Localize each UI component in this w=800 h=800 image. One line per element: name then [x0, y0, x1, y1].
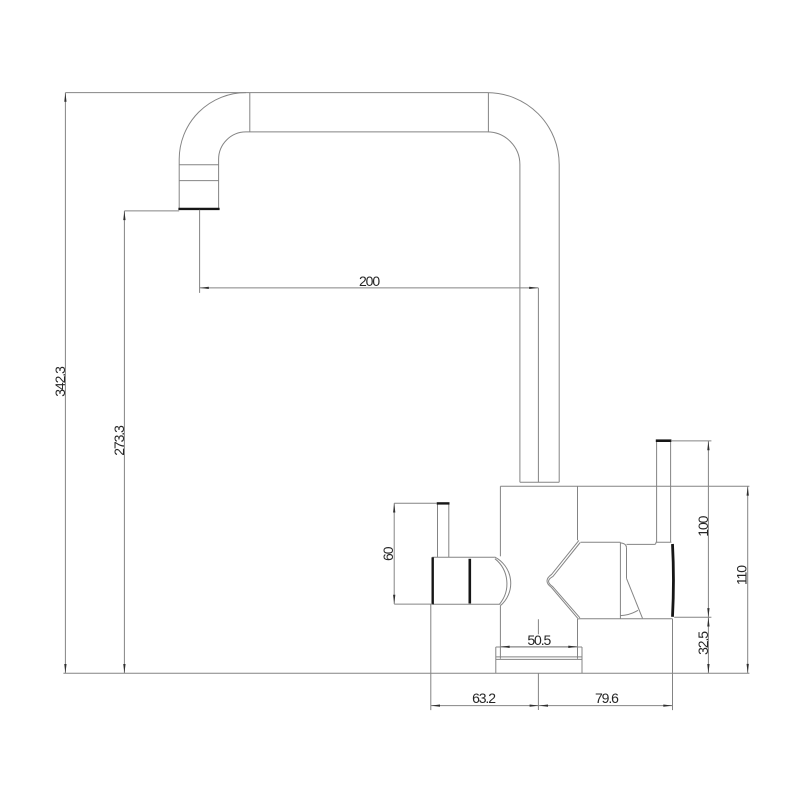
svg-text:100: 100: [695, 515, 711, 536]
svg-text:50.5: 50.5: [527, 632, 551, 648]
svg-text:342.3: 342.3: [52, 366, 68, 397]
svg-text:63.2: 63.2: [472, 690, 496, 706]
svg-text:110: 110: [733, 565, 749, 585]
svg-text:32.5: 32.5: [695, 631, 711, 655]
svg-text:60: 60: [380, 546, 396, 561]
svg-text:273.3: 273.3: [111, 425, 127, 456]
svg-text:200: 200: [359, 273, 380, 289]
svg-text:79.6: 79.6: [595, 690, 619, 706]
